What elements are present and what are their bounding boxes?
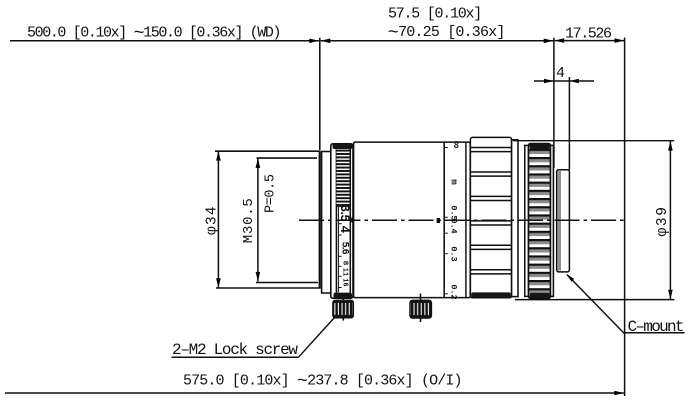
svg-text:575.0 [0.10x] ~237.8 [0.36x] (: 575.0 [0.10x] ~237.8 [0.36x] (O/I) xyxy=(183,371,463,392)
svg-text:2–M2 Lock screw: 2–M2 Lock screw xyxy=(172,341,298,359)
svg-text:57.5 [0.10x]: 57.5 [0.10x] xyxy=(388,6,482,23)
svg-text:4: 4 xyxy=(337,226,351,234)
svg-text:φ34: φ34 xyxy=(205,207,221,236)
svg-text:3.5: 3.5 xyxy=(337,204,351,222)
svg-text:~70.25 [0.36x]: ~70.25 [0.36x] xyxy=(388,22,506,43)
svg-text:8: 8 xyxy=(340,261,348,266)
svg-text:0.3: 0.3 xyxy=(449,246,459,261)
svg-text:16: 16 xyxy=(341,278,349,286)
svg-text:500.0 [0.10x] ~150.0 [0.36x] (: 500.0 [0.10x] ~150.0 [0.36x] (WD) xyxy=(27,23,282,44)
svg-text:5.6: 5.6 xyxy=(338,242,349,255)
svg-text:φ39: φ39 xyxy=(655,207,671,237)
svg-text:m: m xyxy=(449,179,459,185)
svg-text:M30.5: M30.5 xyxy=(241,198,257,243)
svg-text:17.526: 17.526 xyxy=(565,26,612,43)
svg-text:∞: ∞ xyxy=(449,141,463,149)
svg-text:P=0.5: P=0.5 xyxy=(264,174,279,213)
svg-text:0.2: 0.2 xyxy=(449,284,459,299)
svg-text:4: 4 xyxy=(556,65,565,82)
svg-text:11: 11 xyxy=(341,268,349,276)
